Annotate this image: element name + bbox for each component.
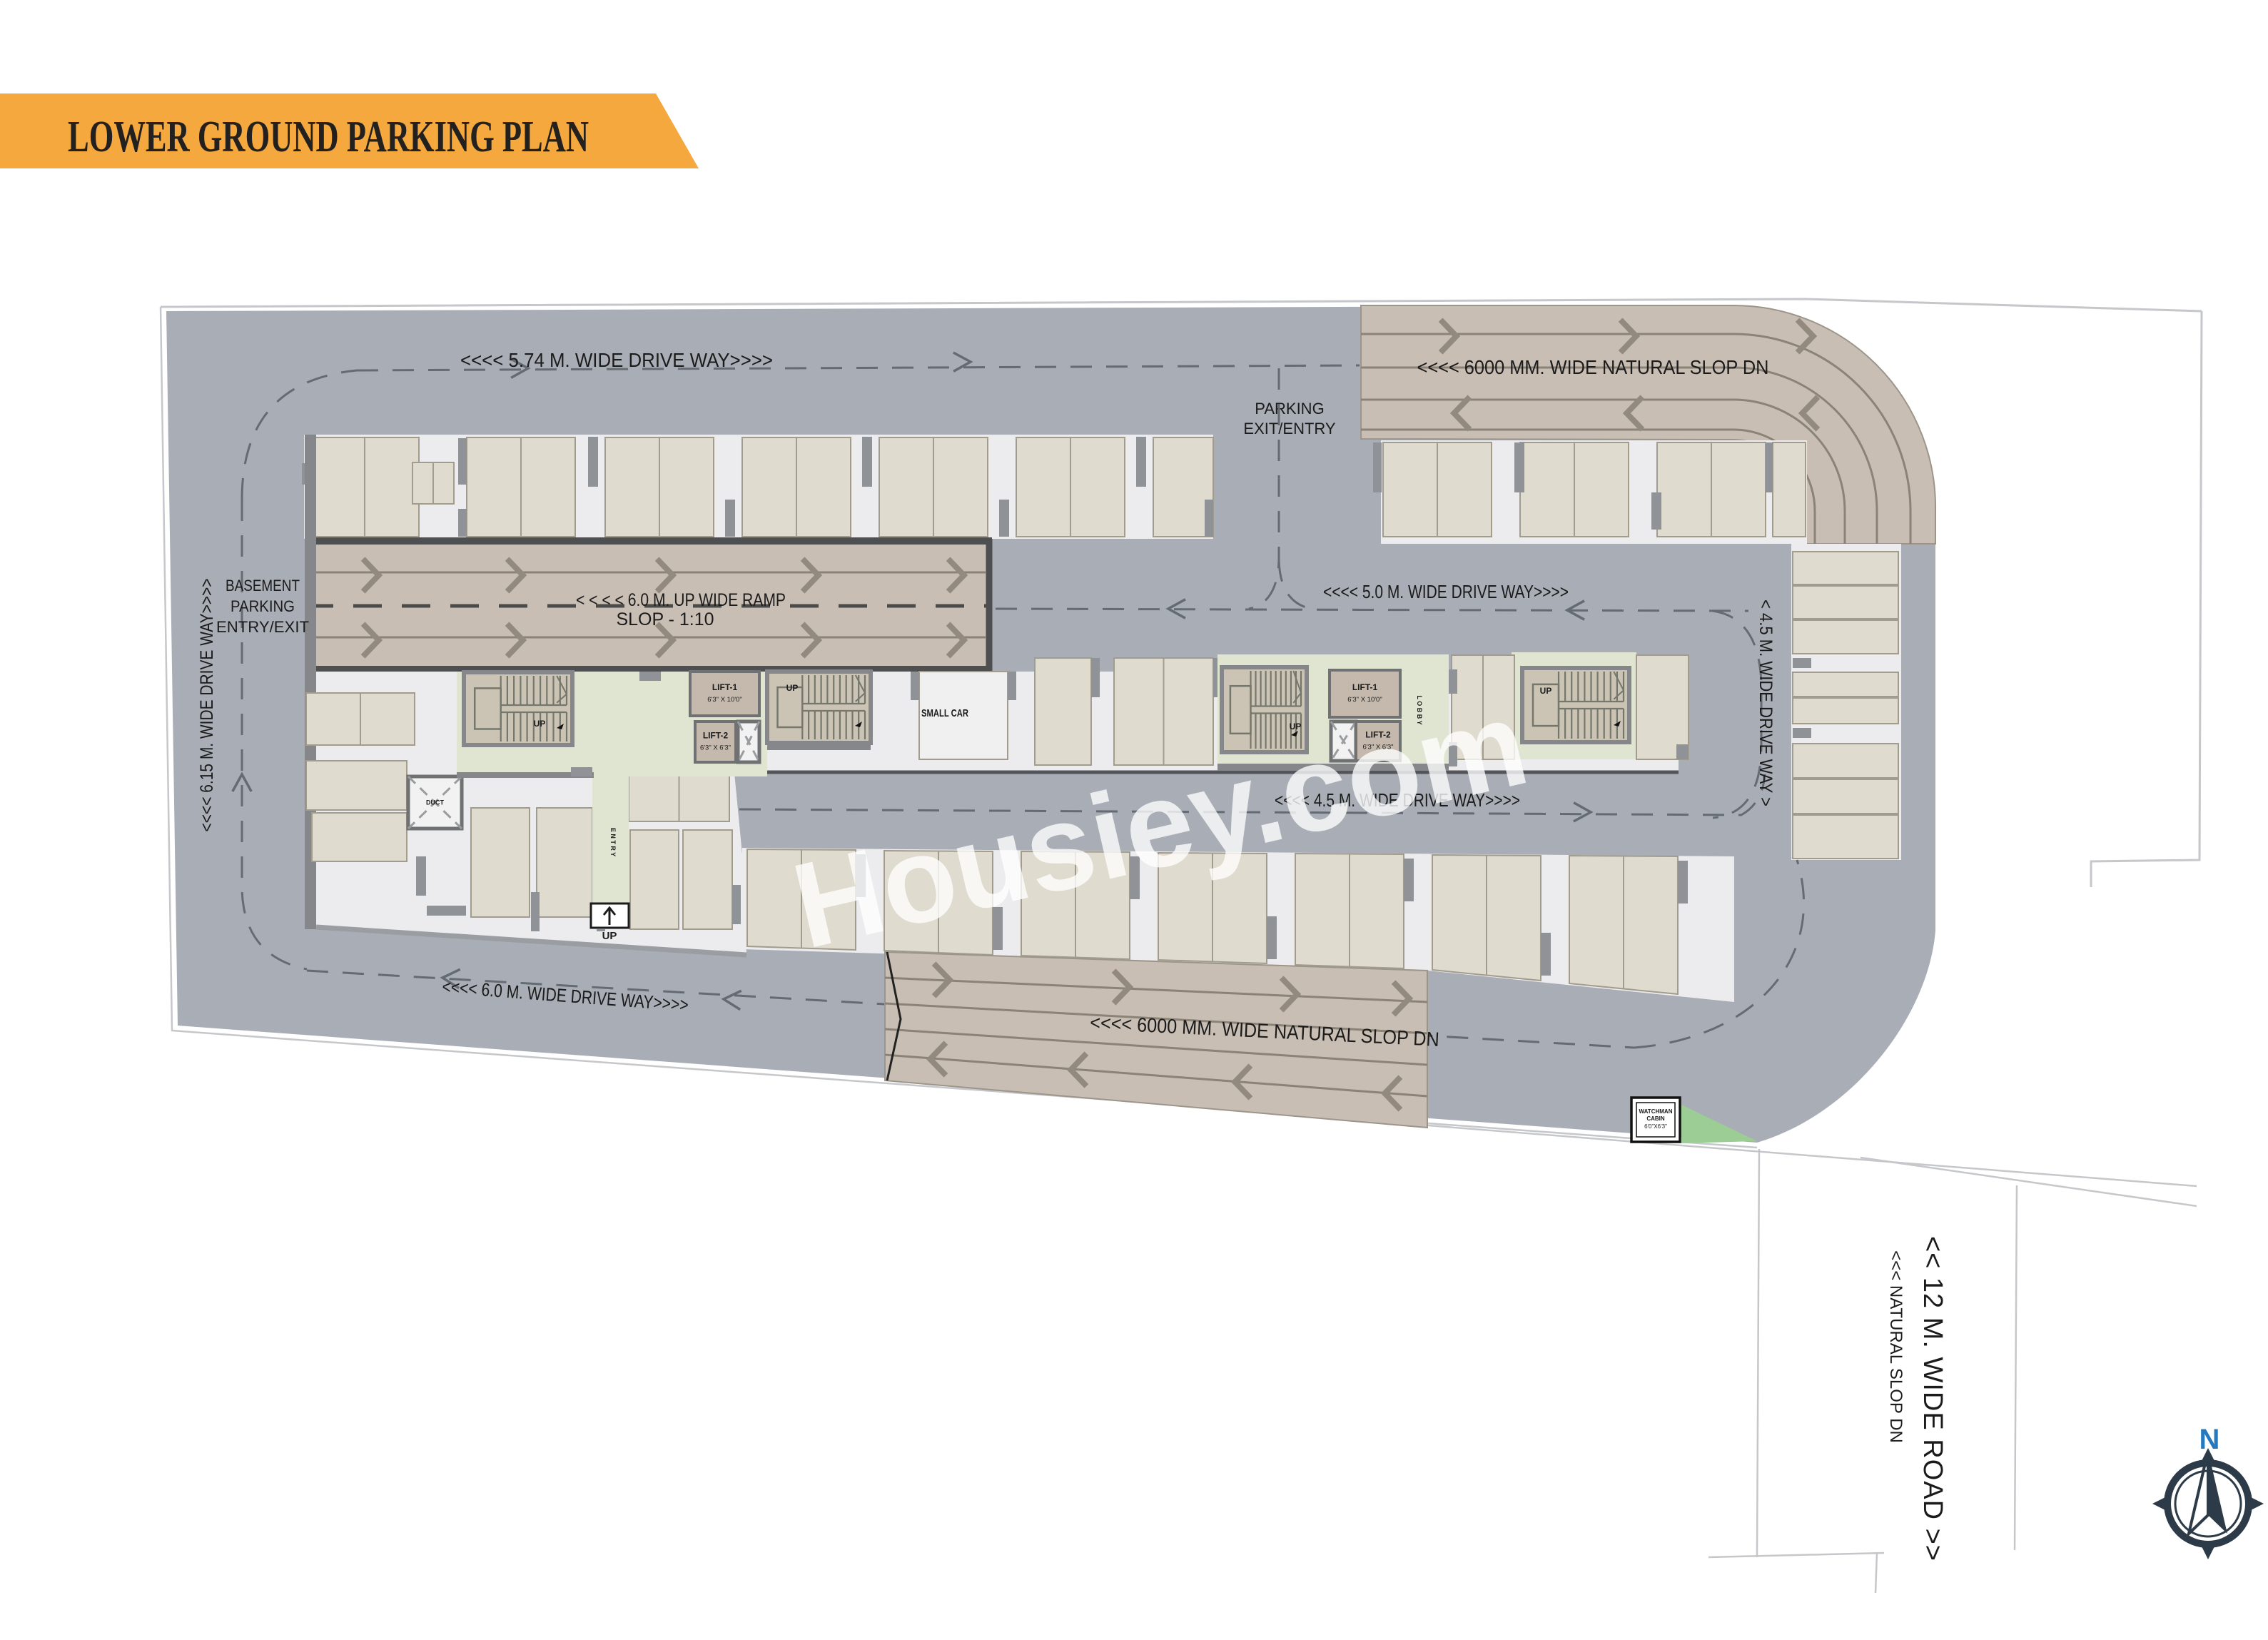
- svg-text:SMALL CAR: SMALL CAR: [921, 707, 968, 719]
- svg-text:<<<< 6.15 M. WIDE DRIVE WAY>>>: <<<< 6.15 M. WIDE DRIVE WAY>>>>: [197, 579, 217, 832]
- svg-text:6'3" X 6'3": 6'3" X 6'3": [700, 744, 731, 752]
- svg-text:UP: UP: [602, 930, 617, 942]
- svg-text:N: N: [2199, 1424, 2220, 1455]
- svg-text:UP: UP: [1540, 686, 1552, 696]
- svg-text:< 4.5 M. WIDE DRIVE WAY >: < 4.5 M. WIDE DRIVE WAY >: [1756, 599, 1776, 806]
- svg-text:PARKING: PARKING: [1255, 400, 1324, 417]
- svg-text:LOWER GROUND PARKING PLAN: LOWER GROUND PARKING PLAN: [68, 113, 589, 161]
- svg-text:E N T R Y: E N T R Y: [609, 828, 617, 856]
- svg-text:DUCT: DUCT: [426, 799, 444, 806]
- svg-text:6'3" X 10'0": 6'3" X 10'0": [1347, 696, 1382, 704]
- svg-text:6'0"X6'3": 6'0"X6'3": [1644, 1123, 1667, 1130]
- svg-text:<<<< 5.74 M. WIDE DRIVE WAY>>>: <<<< 5.74 M. WIDE DRIVE WAY>>>>: [460, 349, 773, 371]
- svg-text:<<<< 6000 MM. WIDE NATURAL S: <<<< 6000 MM. WIDE NATURAL SLOP DN: [1417, 356, 1769, 378]
- svg-text:BASEMENT: BASEMENT: [226, 577, 300, 594]
- svg-text:WATCHMAN: WATCHMAN: [1639, 1108, 1673, 1115]
- svg-text:LIFT-2: LIFT-2: [703, 731, 729, 741]
- svg-text:CABIN: CABIN: [1646, 1115, 1665, 1122]
- svg-text:ENTRY/EXIT: ENTRY/EXIT: [216, 618, 309, 636]
- svg-text:<<<< 5.0 M. WIDE DRIVE WAY>>>>: <<<< 5.0 M. WIDE DRIVE WAY>>>>: [1323, 581, 1569, 602]
- svg-text:SLOP - 1:10: SLOP - 1:10: [616, 609, 714, 629]
- svg-text:6'3" X 10'0": 6'3" X 10'0": [707, 696, 741, 704]
- svg-text:LIFT-1: LIFT-1: [712, 682, 738, 692]
- svg-text:<<< NATURAL SLOP DN: <<< NATURAL SLOP DN: [1886, 1250, 1905, 1443]
- svg-text:<< 12 M. WIDE ROAD >>: << 12 M. WIDE ROAD >>: [1918, 1236, 1948, 1561]
- svg-text:UP: UP: [786, 683, 799, 693]
- svg-text:< < < < 6.0 M. UP WIDE RAMP: < < < < 6.0 M. UP WIDE RAMP: [576, 590, 786, 610]
- svg-text:LIFT-1: LIFT-1: [1352, 682, 1378, 692]
- svg-text:EXIT/ENTRY: EXIT/ENTRY: [1243, 420, 1336, 437]
- svg-text:UP: UP: [534, 719, 546, 729]
- svg-text:PARKING: PARKING: [231, 597, 295, 615]
